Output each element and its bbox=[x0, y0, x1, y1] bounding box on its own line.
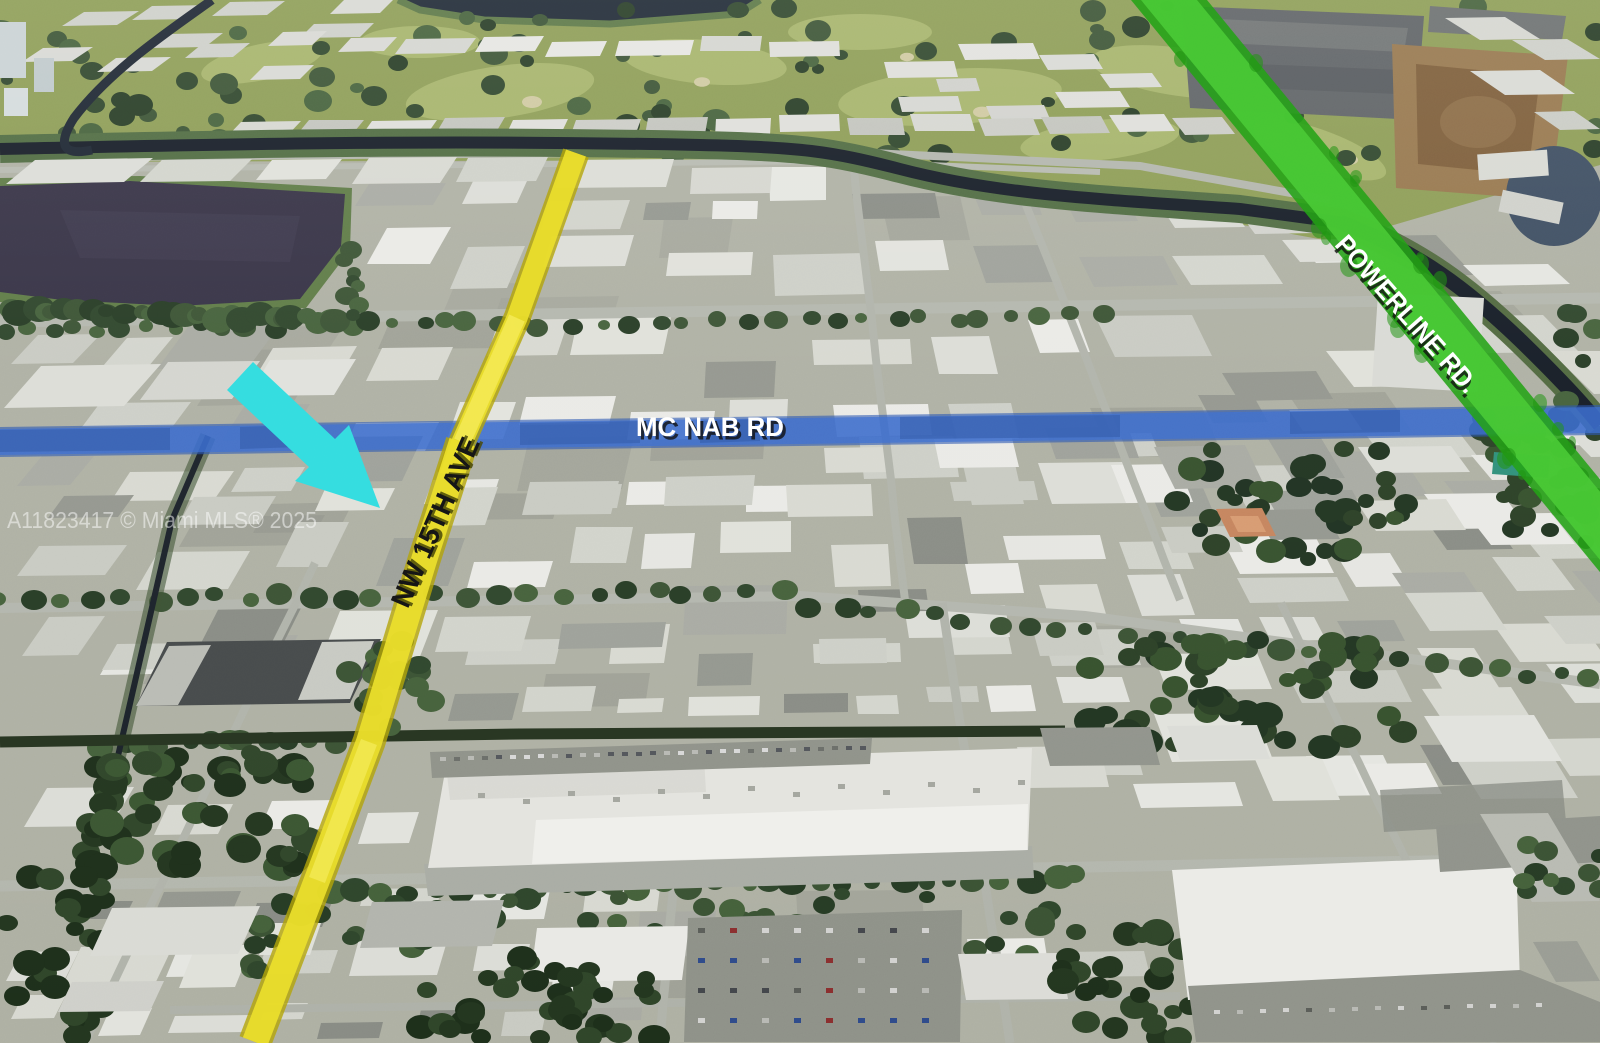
svg-text:MC NAB RD: MC NAB RD bbox=[636, 412, 784, 442]
svg-text:A11823417 © Miami MLS® 2025: A11823417 © Miami MLS® 2025 bbox=[7, 507, 317, 533]
